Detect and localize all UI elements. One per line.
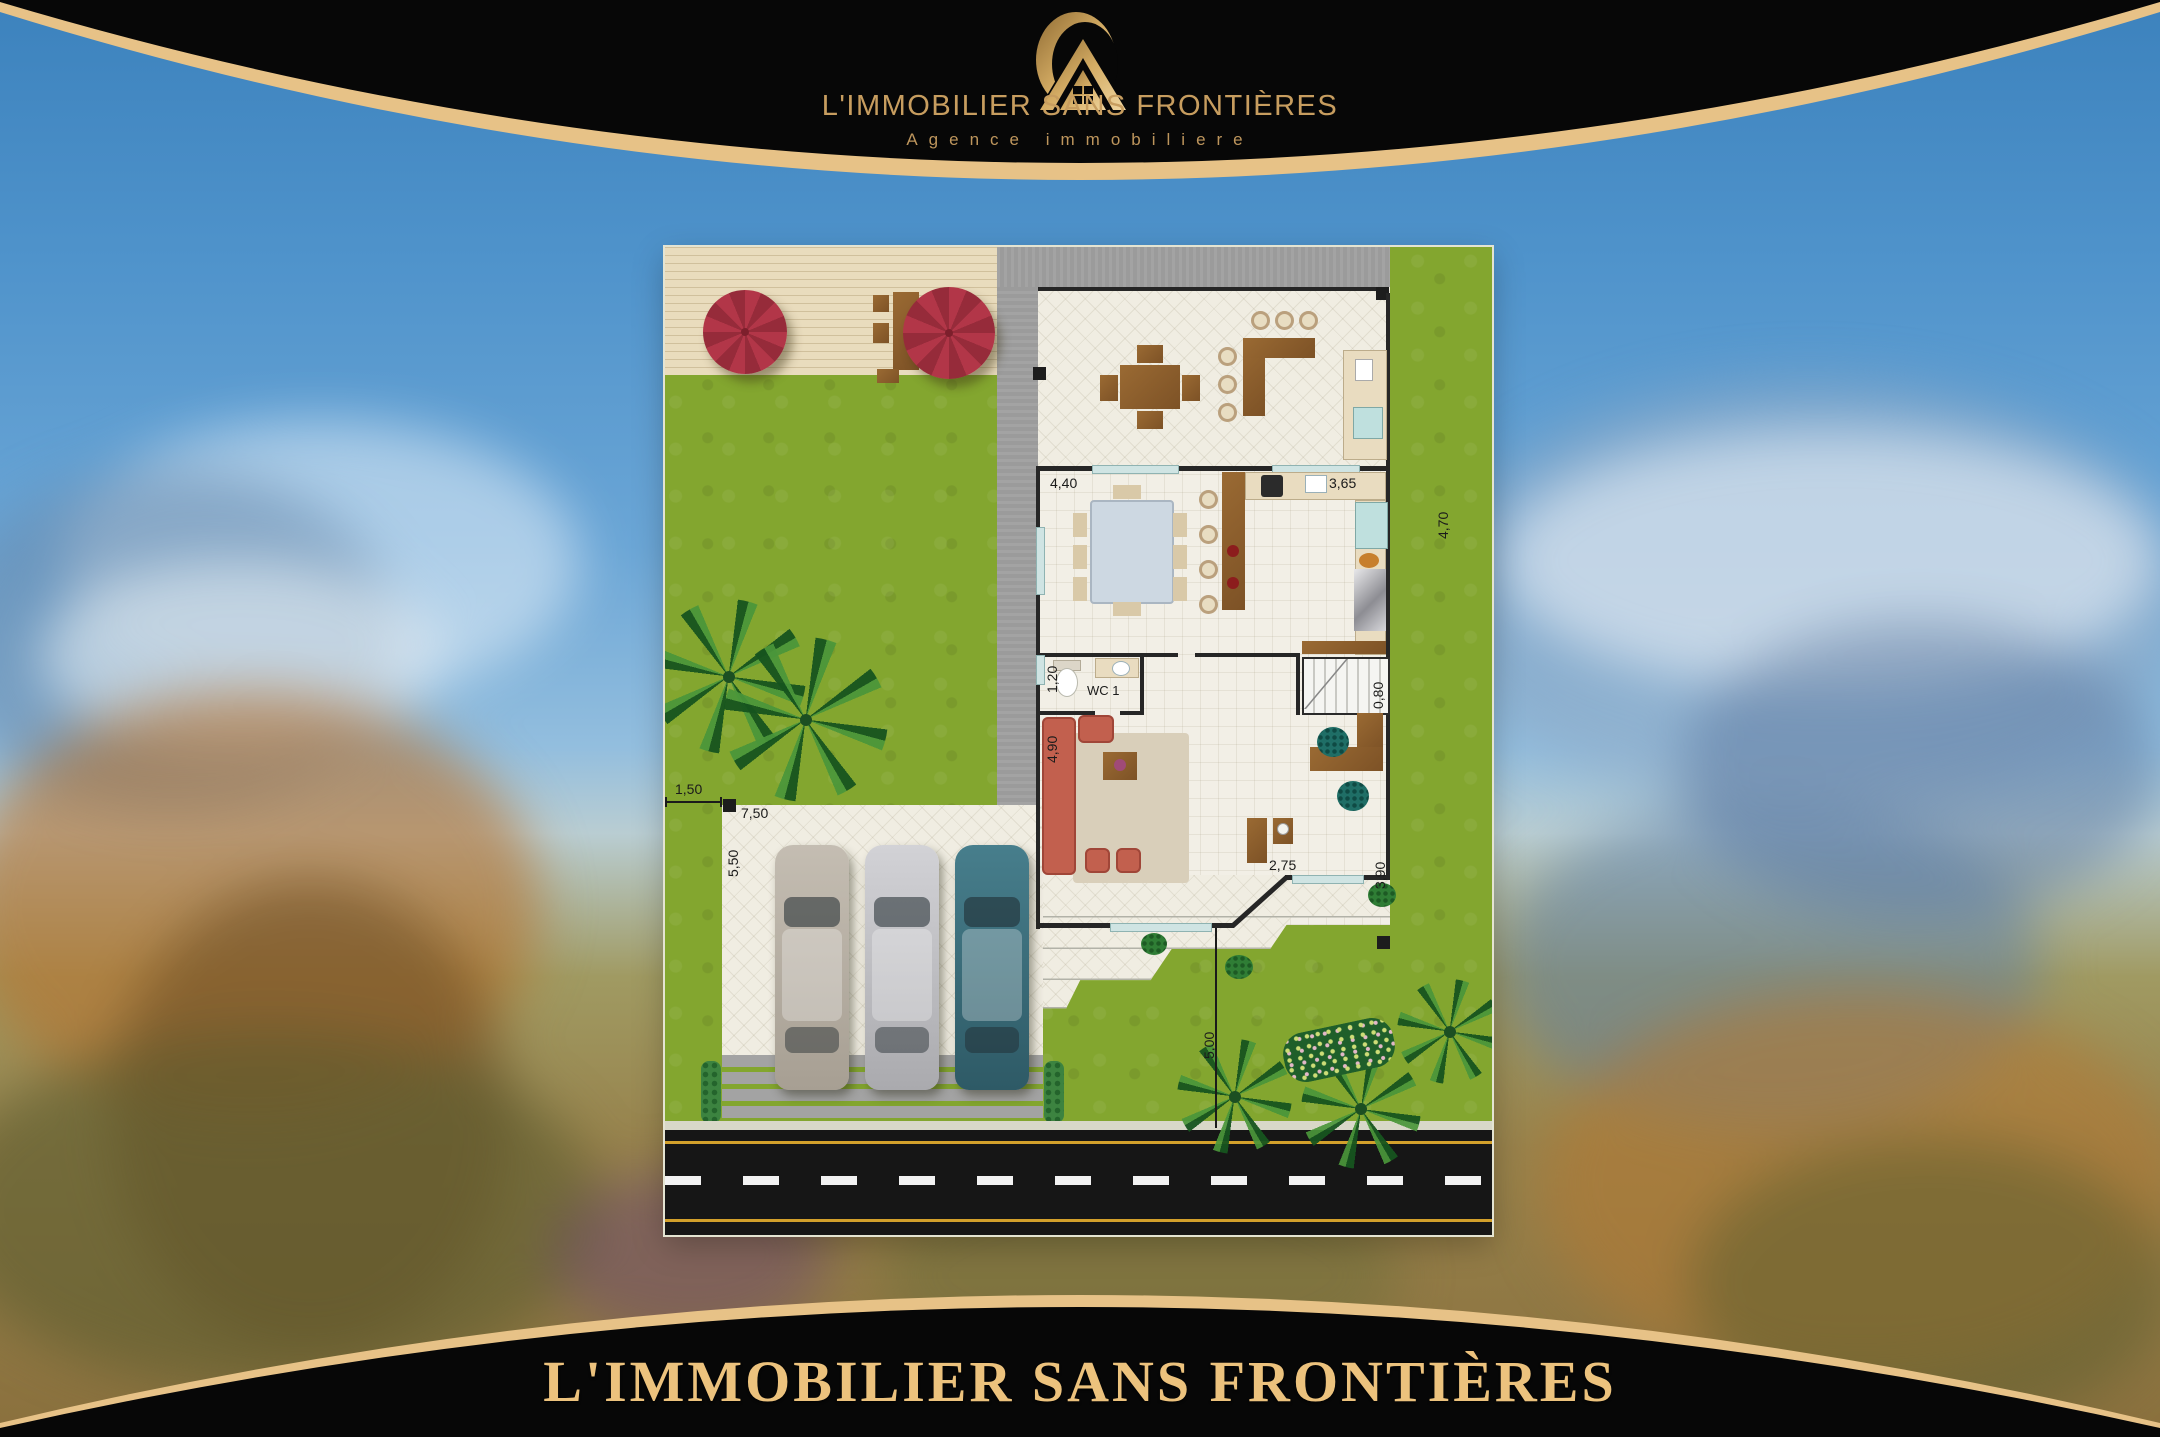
- bar-stool: [1218, 347, 1237, 366]
- dimension-label: 2,75: [1269, 857, 1296, 873]
- decor-bowl: [1277, 823, 1289, 835]
- car-windshield: [964, 897, 1020, 927]
- bar-stool: [1199, 525, 1218, 544]
- dining-chair: [1113, 602, 1141, 616]
- palm-tree: [723, 637, 888, 802]
- kitchen-island: [1222, 472, 1245, 610]
- bush: [1225, 955, 1253, 979]
- agency-title: L'IMMOBILIER SANS FRONTIÈRES: [0, 90, 2160, 123]
- bar-stool: [1199, 560, 1218, 579]
- outdoor-chair: [1137, 345, 1163, 363]
- dining-chair: [1173, 577, 1187, 601]
- bar-stool: [1299, 311, 1318, 330]
- dimension-line: [665, 801, 722, 803]
- wall: [1038, 287, 1378, 291]
- window: [1036, 527, 1045, 595]
- palm-tree: [1397, 979, 1492, 1084]
- window: [1092, 465, 1179, 474]
- wc-sink: [1112, 661, 1130, 676]
- outdoor-chair: [1137, 411, 1163, 429]
- plate: [1227, 577, 1239, 589]
- foliage-left: [0, 1030, 600, 1390]
- bar-stool: [1275, 311, 1294, 330]
- poster: 4,40 3,65 4,70 1,20 4,90 0,80 2,75 3,90 …: [0, 0, 2160, 1437]
- dining-chair: [1173, 545, 1187, 569]
- dimension-label: 4,70: [1435, 512, 1451, 539]
- room-label-wc: WC 1: [1087, 683, 1120, 698]
- counter-glass: [1353, 407, 1383, 439]
- table-flowers: [1114, 759, 1126, 771]
- dimension-label: 7,50: [741, 805, 768, 821]
- car-teal: [955, 845, 1029, 1090]
- cooktop: [1261, 475, 1283, 497]
- sidewalk-top: [997, 247, 1390, 287]
- wall: [1140, 653, 1144, 715]
- outdoor-table: [1120, 365, 1180, 409]
- ottoman: [1085, 848, 1110, 873]
- dining-chair: [1073, 577, 1087, 601]
- wall: [1038, 653, 1178, 657]
- wall: [1120, 711, 1144, 715]
- armchair: [1078, 715, 1114, 743]
- footer-title: L'IMMOBILIER SANS FRONTIÈRES: [0, 1348, 2160, 1415]
- dimension-line: [1215, 928, 1217, 1128]
- plant: [1317, 727, 1349, 757]
- terrace-floor: [1038, 287, 1390, 470]
- dining-chair: [1113, 485, 1141, 499]
- dining-chair: [1073, 545, 1087, 569]
- bar-stool: [1251, 311, 1270, 330]
- car-roof: [872, 929, 932, 1021]
- dimension-label: 4,90: [1044, 736, 1060, 763]
- dimension-label: 3,90: [1372, 862, 1388, 889]
- ottoman: [1116, 848, 1141, 873]
- wall-post: [1033, 367, 1046, 380]
- road-center-dashes: [665, 1176, 1492, 1185]
- car-roof: [782, 929, 842, 1021]
- wall: [1195, 653, 1300, 657]
- outdoor-chair: [1182, 375, 1200, 401]
- dimension-label: 5,50: [725, 850, 741, 877]
- glass-cabinet: [1355, 502, 1388, 549]
- window: [1110, 923, 1212, 932]
- car-roof: [962, 929, 1022, 1021]
- outdoor-chair: [1100, 375, 1118, 401]
- wall-post: [1377, 936, 1390, 949]
- dimension-label: 1,20: [1044, 666, 1060, 693]
- deck-chair: [877, 369, 899, 383]
- wall-post: [723, 799, 736, 812]
- dining-table: [1090, 500, 1174, 604]
- bar-counter: [1243, 338, 1315, 358]
- car-windshield: [784, 897, 840, 927]
- dimension-label: 4,40: [1050, 475, 1077, 491]
- fruit-bowl: [1359, 553, 1379, 568]
- dimension-label: 1,50: [675, 781, 702, 797]
- car-rear-window: [875, 1027, 929, 1053]
- fridge: [1354, 569, 1386, 631]
- bar-stool: [1199, 595, 1218, 614]
- dimension-label: 3,65: [1329, 475, 1356, 491]
- sidewalk-left: [997, 287, 1040, 805]
- dimension-label: 5,00: [1201, 1032, 1217, 1059]
- car-beige: [775, 845, 849, 1090]
- floor-plan: 4,40 3,65 4,70 1,20 4,90 0,80 2,75 3,90 …: [665, 247, 1492, 1235]
- hedge-left: [701, 1061, 721, 1123]
- kitchen-sink: [1305, 475, 1327, 493]
- patio-umbrella: [903, 287, 995, 379]
- hedge-right: [1044, 1061, 1064, 1123]
- palm-tree: [1177, 1039, 1292, 1154]
- plant: [1337, 781, 1369, 811]
- car-rear-window: [965, 1027, 1019, 1053]
- dimension-label: 0,80: [1370, 682, 1386, 709]
- car-windshield: [874, 897, 930, 927]
- window: [1292, 875, 1364, 884]
- deck-chair: [873, 323, 889, 343]
- dining-chair: [1073, 513, 1087, 537]
- agency-subtitle: Agence immobiliere: [0, 130, 2160, 150]
- road-line-bottom: [665, 1219, 1492, 1222]
- dimension-tick: [720, 797, 722, 807]
- car-silver: [865, 845, 939, 1090]
- bar-stool: [1199, 490, 1218, 509]
- deck-chair: [873, 295, 889, 312]
- car-rear-window: [785, 1027, 839, 1053]
- dimension-tick: [665, 797, 667, 807]
- dining-chair: [1173, 513, 1187, 537]
- desk: [1357, 713, 1383, 749]
- bar-stool: [1218, 403, 1237, 422]
- plate: [1227, 545, 1239, 557]
- counter-sink: [1355, 359, 1373, 381]
- bush: [1141, 933, 1167, 955]
- sideboard: [1302, 641, 1386, 654]
- bar-stool: [1218, 375, 1237, 394]
- patio-umbrella: [703, 290, 787, 374]
- wall: [1296, 653, 1300, 715]
- tv-console: [1247, 818, 1267, 863]
